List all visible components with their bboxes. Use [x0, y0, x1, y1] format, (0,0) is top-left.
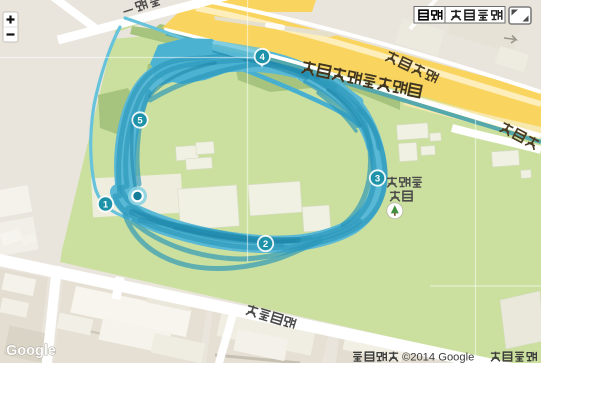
svg-text:3: 3	[375, 173, 380, 184]
svg-text:©2014 Google: ©2014 Google	[402, 352, 474, 364]
svg-text:Google: Google	[6, 343, 56, 359]
svg-text:2: 2	[263, 239, 268, 250]
svg-text:1: 1	[103, 199, 109, 210]
svg-text:4: 4	[260, 52, 266, 63]
svg-text:5: 5	[137, 115, 143, 126]
